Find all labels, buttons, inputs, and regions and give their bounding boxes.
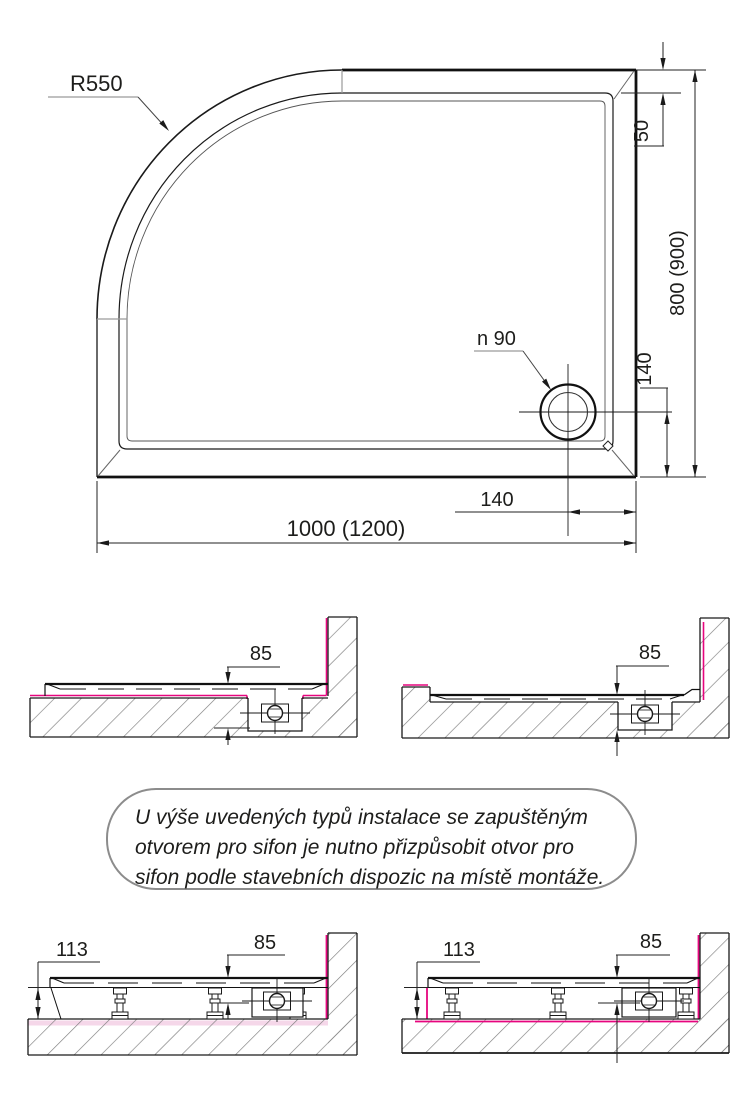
note-line-2: otvorem pro sifon je nutno přizpůsobit o… [135, 833, 617, 863]
adjustable-foot [550, 988, 566, 1019]
rim-width-dimension-label: 50 [631, 120, 653, 142]
radius-leader [48, 97, 171, 133]
installation-note: U výše uvedených typů instalace se zapuš… [106, 788, 637, 890]
radius-dimension-label: R550 [70, 71, 123, 96]
siphon-symbol [240, 689, 310, 734]
section-feet-left: 113 85 [28, 932, 357, 1055]
section-recessed-left: 85 [30, 617, 357, 745]
technical-drawing: R550 50 800 (900) 140 n 90 140 1000 (120… [0, 0, 750, 1110]
note-line-1: U výše uvedených typů instalace se zapuš… [135, 803, 617, 833]
section-recessed-right: 85 [402, 618, 729, 756]
drain-offset-horizontal-label: 140 [480, 489, 513, 511]
adjustable-foot [112, 988, 128, 1019]
plan-view: R550 50 800 (900) 140 n 90 140 1000 (120… [48, 42, 706, 553]
tray-height-label: 85 [640, 931, 662, 953]
feet-height-label: 113 [443, 939, 475, 961]
shower-tray-profile [404, 978, 700, 988]
dimension-feet-height [35, 962, 100, 1019]
waterproofing-line [30, 618, 327, 699]
drain-leader [474, 351, 553, 391]
drain-offset-vertical-label: 140 [634, 352, 656, 385]
tray-height-label: 85 [639, 642, 661, 664]
feet-height-label: 113 [56, 939, 88, 961]
note-line-3: sifon podle stavebních dispozic na místě… [135, 863, 617, 893]
section-feet-right: 113 85 [402, 931, 729, 1063]
siphon-symbol [610, 690, 680, 735]
shower-tray-profile [45, 684, 328, 696]
adjustable-foot [678, 988, 694, 1019]
width-dimension-label: 1000 (1200) [287, 516, 406, 541]
depth-dimension-label: 800 (900) [667, 230, 689, 316]
tray-height-label: 85 [250, 643, 272, 665]
tray-height-label: 85 [254, 932, 276, 954]
drain-diameter-label: n 90 [477, 328, 516, 350]
drain-hole [519, 364, 672, 536]
dimension-drain-offset-vertical [640, 388, 670, 477]
adjustable-foot [444, 988, 460, 1019]
shower-tray-profile [430, 690, 700, 703]
